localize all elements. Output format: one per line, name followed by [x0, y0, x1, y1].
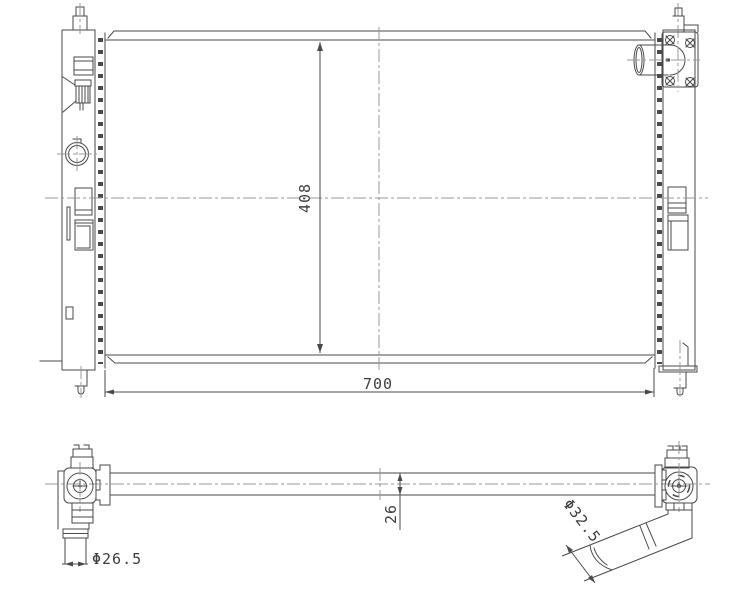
dim-700-label: 700 — [363, 375, 393, 393]
right-pipe — [590, 510, 692, 570]
dim-phi32-label: Φ32.5 — [559, 496, 604, 547]
header-bar — [45, 465, 710, 507]
front-centerlines — [45, 27, 708, 371]
dimension-width: 700 — [105, 368, 654, 397]
left-side-tab — [66, 307, 73, 319]
dim-phi26-label: Φ26.5 — [92, 550, 142, 568]
technical-drawing: 408 700 Φ26.5 — [0, 0, 747, 600]
dimension-core-thickness: 26 — [382, 473, 403, 530]
top-view: Φ26.5 26 Φ32.5 — [45, 441, 710, 583]
dim-26-label: 26 — [382, 504, 400, 524]
left-bottom-pin — [75, 366, 87, 398]
drain-plug — [57, 136, 97, 172]
right-mount — [662, 441, 697, 512]
left-upper-bracket — [63, 57, 93, 112]
dim-408-label: 408 — [296, 183, 314, 213]
front-view: 408 700 — [40, 3, 708, 399]
core — [105, 31, 655, 363]
left-pipe — [63, 503, 93, 564]
dimension-left-pipe: Φ26.5 — [62, 550, 142, 568]
left-mount — [58, 445, 96, 529]
left-top-pin — [73, 3, 87, 34]
right-top-pin — [673, 8, 698, 32]
right-middle-bracket — [668, 187, 688, 250]
left-middle-bracket — [67, 188, 93, 250]
drawing-canvas: 408 700 Φ26.5 — [0, 0, 747, 600]
